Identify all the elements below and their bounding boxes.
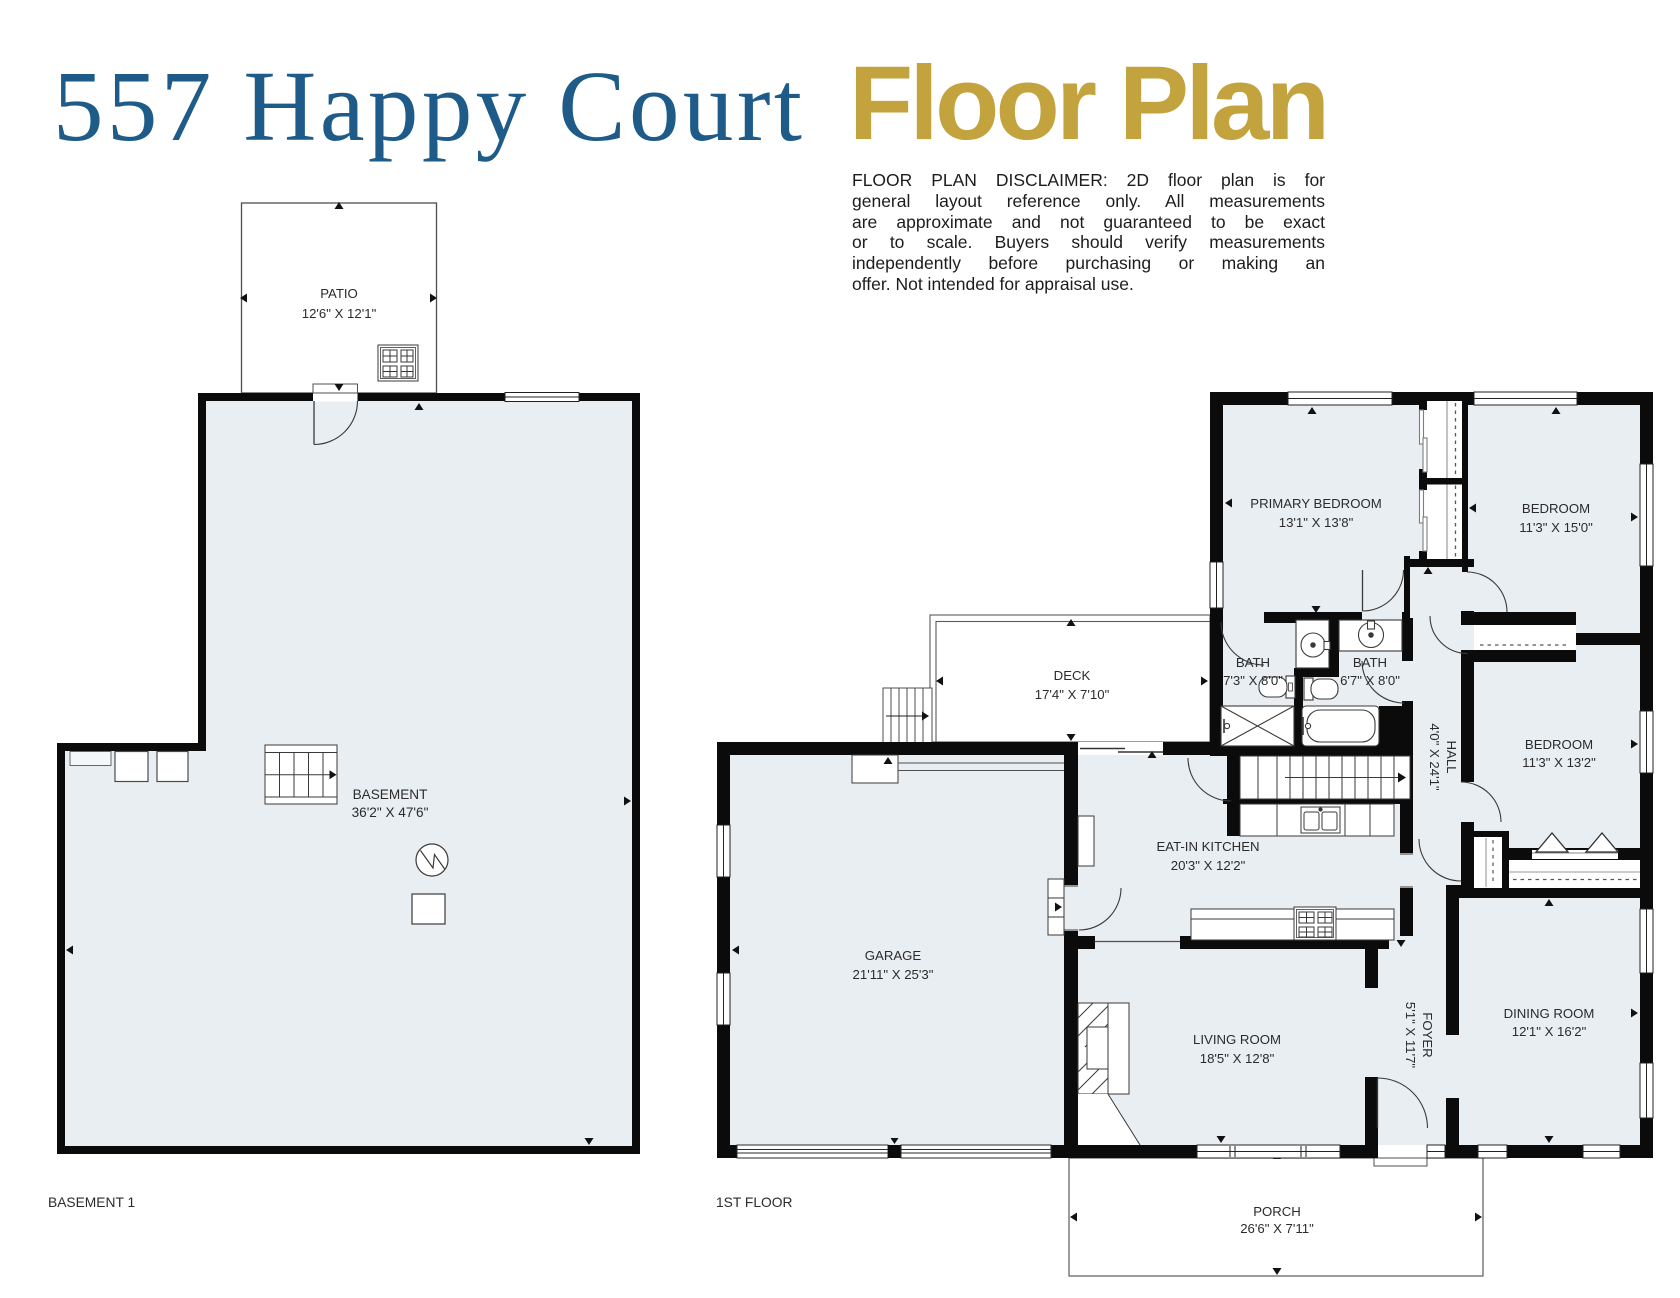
svg-text:BATH: BATH <box>1353 655 1387 670</box>
svg-text:5'1" X 11'7": 5'1" X 11'7" <box>1403 1002 1418 1069</box>
svg-text:PATIO: PATIO <box>320 286 358 301</box>
svg-text:21'11" X 25'3": 21'11" X 25'3" <box>853 967 934 982</box>
svg-text:11'3" X 13'2": 11'3" X 13'2" <box>1522 755 1596 770</box>
svg-text:11'3" X 15'0": 11'3" X 15'0" <box>1519 520 1593 535</box>
svg-text:1ST FLOOR: 1ST FLOOR <box>716 1195 792 1210</box>
svg-text:HALL: HALL <box>1444 741 1459 774</box>
svg-text:EAT-IN KITCHEN: EAT-IN KITCHEN <box>1156 839 1259 854</box>
svg-text:17'4" X 7'10": 17'4" X 7'10" <box>1035 687 1110 702</box>
svg-text:4'0" X 24'1": 4'0" X 24'1" <box>1427 723 1442 791</box>
svg-text:36'2" X 47'6": 36'2" X 47'6" <box>352 805 429 820</box>
svg-text:BASEMENT: BASEMENT <box>353 787 428 802</box>
svg-text:12'6" X 12'1": 12'6" X 12'1" <box>302 306 377 321</box>
svg-text:GARAGE: GARAGE <box>865 948 922 963</box>
svg-text:LIVING ROOM: LIVING ROOM <box>1193 1032 1281 1047</box>
svg-text:12'1" X 16'2": 12'1" X 16'2" <box>1512 1024 1587 1039</box>
svg-text:26'6" X 7'11": 26'6" X 7'11" <box>1240 1221 1314 1236</box>
svg-text:18'5" X 12'8": 18'5" X 12'8" <box>1200 1051 1275 1066</box>
svg-text:7'3" X 8'0": 7'3" X 8'0" <box>1223 673 1283 688</box>
svg-text:DINING ROOM: DINING ROOM <box>1504 1006 1595 1021</box>
svg-text:FOYER: FOYER <box>1420 1012 1435 1057</box>
svg-text:PRIMARY BEDROOM: PRIMARY BEDROOM <box>1250 496 1381 511</box>
svg-text:6'7" X 8'0": 6'7" X 8'0" <box>1340 673 1400 688</box>
svg-text:PORCH: PORCH <box>1253 1204 1301 1219</box>
svg-text:20'3" X 12'2": 20'3" X 12'2" <box>1171 858 1246 873</box>
svg-text:13'1" X 13'8": 13'1" X 13'8" <box>1279 515 1354 530</box>
svg-text:DECK: DECK <box>1054 668 1091 683</box>
svg-text:BEDROOM: BEDROOM <box>1522 501 1590 516</box>
svg-text:BATH: BATH <box>1236 655 1270 670</box>
svg-text:BEDROOM: BEDROOM <box>1525 737 1593 752</box>
svg-text:BASEMENT 1: BASEMENT 1 <box>48 1195 135 1210</box>
